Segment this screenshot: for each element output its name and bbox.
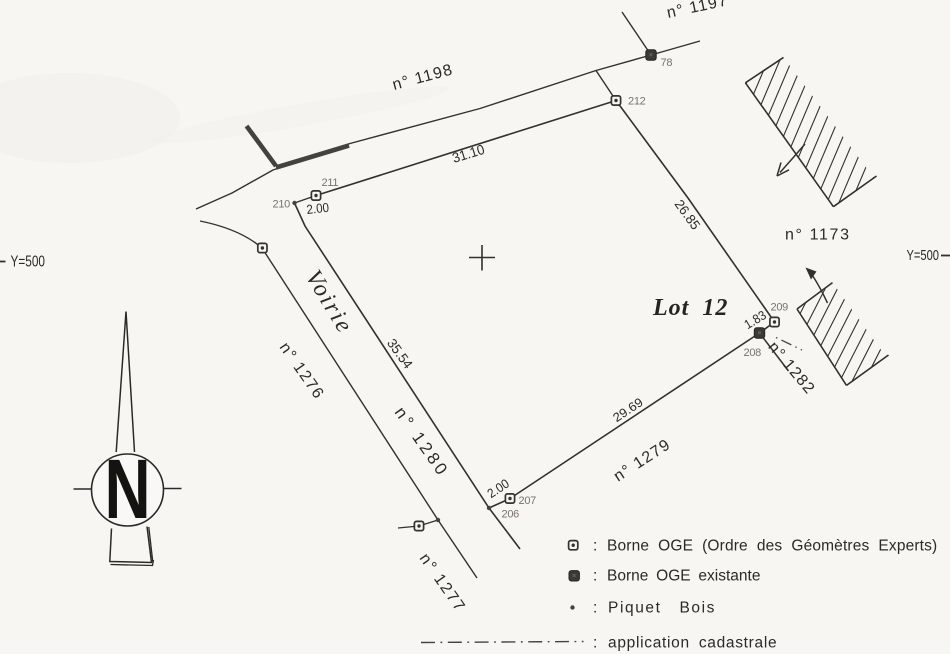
svg-text:Y=500: Y=500	[11, 254, 46, 271]
svg-text:Y=500: Y=500	[907, 247, 940, 264]
svg-text:210: 210	[273, 199, 291, 211]
svg-text::: :	[593, 635, 597, 652]
svg-text:211: 211	[322, 177, 339, 189]
svg-text::: :	[593, 568, 597, 585]
svg-text:209: 209	[771, 302, 789, 314]
svg-text:2.00: 2.00	[306, 200, 330, 217]
svg-text:application cadastrale: application cadastrale	[608, 635, 777, 652]
svg-text:206: 206	[502, 509, 520, 521]
svg-text:N: N	[104, 441, 150, 536]
svg-text:78: 78	[661, 57, 673, 69]
svg-text:Piquet Bois: Piquet Bois	[608, 600, 716, 617]
svg-text:n° 1173: n° 1173	[785, 227, 849, 244]
svg-text::: :	[593, 600, 597, 617]
svg-text:212: 212	[628, 96, 646, 108]
svg-text:207: 207	[519, 495, 537, 507]
svg-text::: :	[593, 538, 597, 555]
svg-text:208: 208	[744, 347, 762, 359]
svg-text:Lot 12: Lot 12	[652, 295, 728, 321]
svg-text:Borne OGE existante: Borne OGE existante	[607, 568, 760, 585]
svg-text:Borne OGE (Ordre des Géomètres: Borne OGE (Ordre des Géomètres Experts)	[607, 538, 937, 555]
